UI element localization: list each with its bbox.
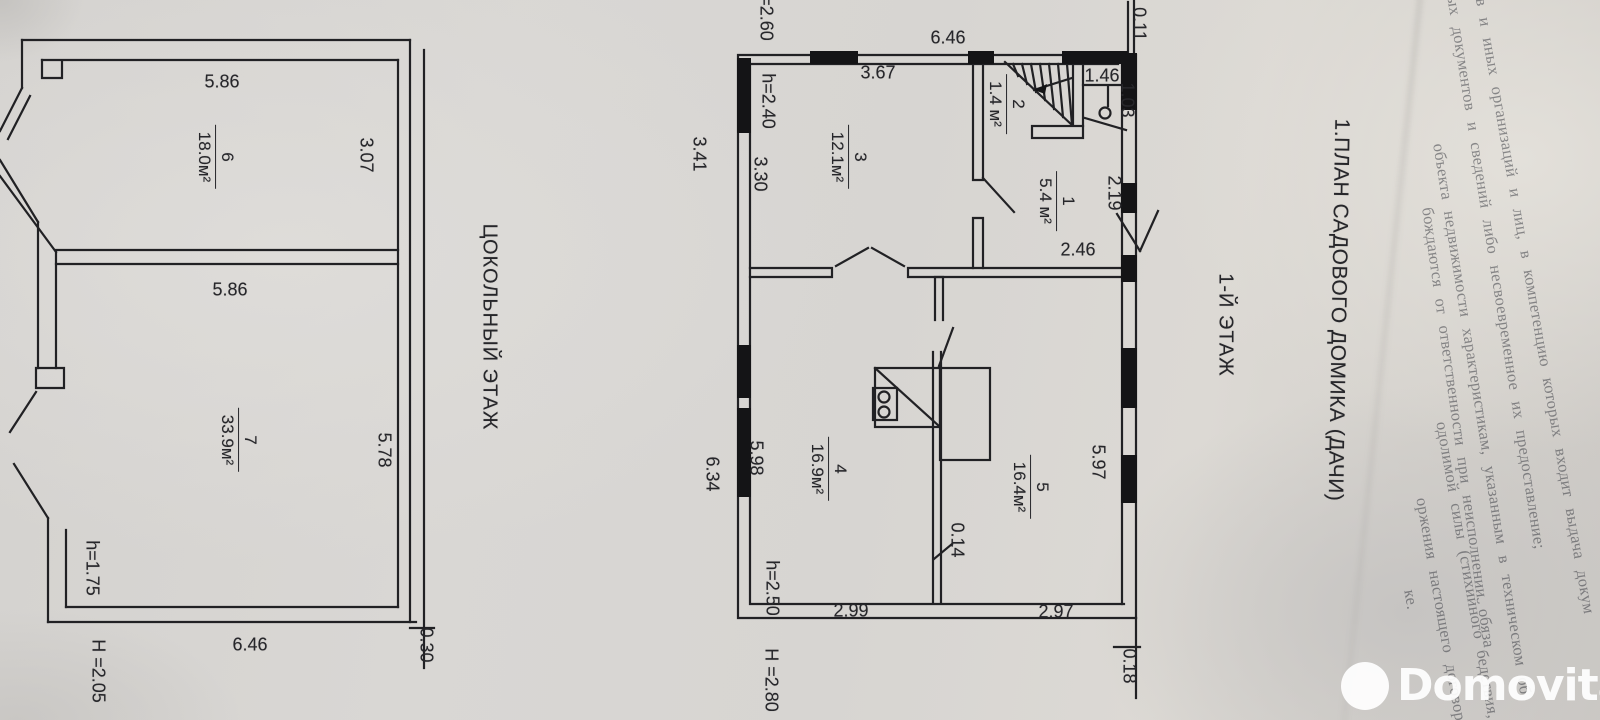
dim-basement-right-depth: 3.07: [356, 137, 377, 172]
dim-ff-room3-width: 3.67: [860, 63, 895, 84]
watermark-circle-icon: [1341, 662, 1389, 710]
dim-basement-h-small: h=1.75: [82, 540, 103, 596]
room-label-7: 7 33.9м²: [218, 408, 260, 472]
dim-ff-room5-depth: 5.97: [1088, 444, 1109, 479]
dim-ff-entry-depth: 1.03: [1117, 82, 1138, 117]
room-label-6: 6 18.0м²: [195, 125, 237, 189]
dim-ff-h-main: Н =2.80: [761, 648, 782, 712]
watermark-brand: Domovita: [1397, 660, 1600, 711]
room-label-4: 4 16.9м²: [808, 437, 850, 501]
dim-ff-left-depth-inner: 3.30: [750, 156, 771, 191]
room-label-5: 5 16.4м²: [1010, 455, 1052, 519]
room-area: 5.4 м²: [1036, 171, 1058, 231]
dim-ff-hall-width: 2.46: [1060, 240, 1095, 261]
dim-ff-h-top-left: h=2.60: [756, 0, 777, 41]
room-number: 3: [850, 146, 871, 167]
dim-basement-mid-width: 5.86: [212, 280, 247, 301]
room-label-3: 3 12.1м²: [828, 125, 870, 189]
room-number: 7: [240, 429, 261, 450]
dim-ff-top-offset: 0.11: [1129, 7, 1150, 41]
dim-ff-room4-depth: 5.98: [746, 440, 767, 475]
room-area: 16.9м²: [808, 437, 830, 501]
room-number: 5: [1032, 476, 1053, 497]
dim-basement-lower-depth: 5.78: [374, 432, 395, 467]
floor-plan-linework: [0, 0, 1600, 720]
room-label-1: 1 5.4 м²: [1036, 171, 1078, 231]
dim-ff-room5-width: 2.97: [1038, 602, 1073, 623]
dim-basement-h-main: Н =2.05: [88, 639, 109, 703]
room-number: 4: [830, 458, 851, 479]
dim-ff-room4-width: 2.99: [833, 601, 868, 622]
dim-ff-stair-width: 1.46: [1084, 66, 1119, 87]
floor-plan-photo: 5.86 3.07 6 18.0м² 5.86 7 33.9м² 5.78 h=…: [0, 0, 1600, 720]
room-label-2: 2 1.4 м²: [986, 74, 1028, 134]
room-area: 16.4м²: [1010, 455, 1032, 519]
dim-basement-top-width: 5.86: [204, 72, 239, 93]
dim-ff-bottom-offset: 0.18: [1119, 648, 1140, 683]
dim-ff-h-room3: h=2.40: [758, 73, 779, 129]
dim-ff-left-depth-lower: 6.34: [702, 456, 723, 491]
dim-ff-right-entry-depth: 2.19: [1104, 175, 1125, 210]
dim-ff-wall-014: 0.14: [947, 522, 968, 557]
dim-basement-bottom-width: 6.46: [232, 635, 267, 656]
room-number: 1: [1058, 190, 1079, 211]
room-number: 6: [217, 146, 238, 167]
faint-text-line: ке.: [1399, 588, 1422, 611]
first-floor-plan-walls: [738, 0, 1158, 698]
dim-ff-left-depth-outer: 3.41: [689, 136, 710, 171]
room-area: 33.9м²: [218, 408, 240, 472]
first-floor-label: 1-Й ЭТАЖ: [1214, 273, 1237, 376]
dim-basement-wall-offset: 0.30: [416, 627, 437, 662]
basement-floor-label: ЦОКОЛЬНЫЙ ЭТАЖ: [478, 224, 501, 431]
room-area: 18.0м²: [195, 125, 217, 189]
room-area: 12.1м²: [828, 125, 850, 189]
dim-ff-top-width: 6.46: [930, 28, 965, 49]
room-number: 2: [1008, 93, 1029, 114]
room-area: 1.4 м²: [986, 74, 1008, 134]
dim-ff-h-room4: h=2.50: [762, 560, 783, 616]
